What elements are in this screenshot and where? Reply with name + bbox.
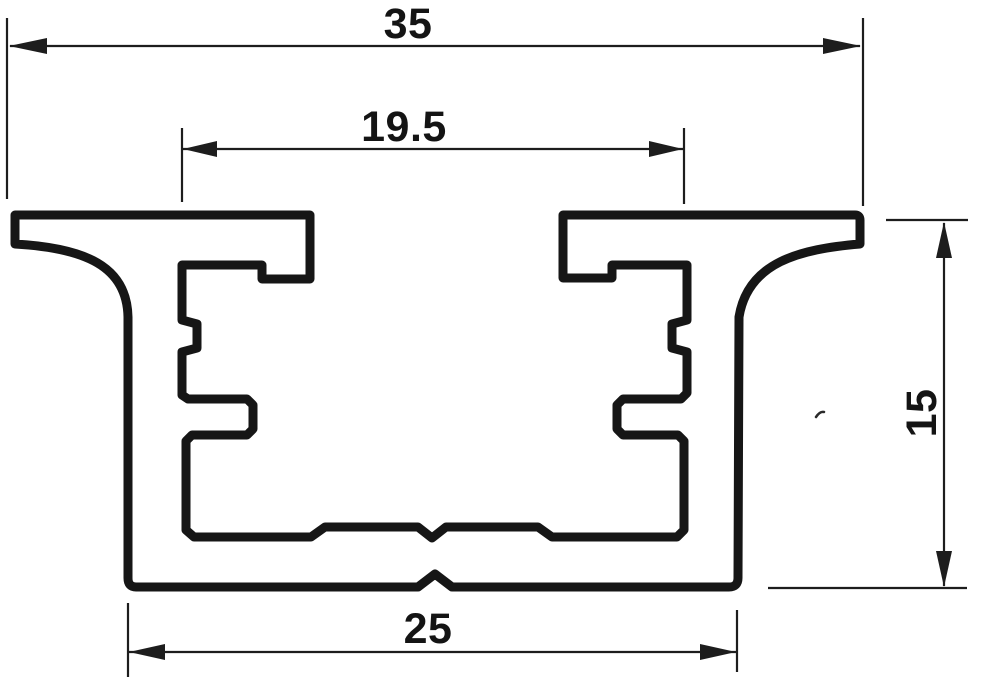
- arrowhead-down: [936, 551, 952, 587]
- dimension-base-width: 25: [128, 603, 737, 677]
- profile-outline: [15, 215, 860, 587]
- scan-speck: [816, 412, 824, 417]
- arrowhead-right: [700, 644, 736, 660]
- dimension-height: 15: [768, 220, 968, 588]
- arrowhead-left: [183, 141, 217, 157]
- arrowhead-right: [649, 141, 683, 157]
- technical-drawing-canvas: 35 19.5 15 25: [0, 0, 1000, 685]
- dimension-base-width-label: 25: [404, 605, 453, 653]
- dimension-opening-width: 19.5: [182, 103, 684, 204]
- arrowhead-up: [936, 222, 952, 258]
- dimension-height-label: 15: [898, 389, 946, 438]
- drawing-sheet: 35 19.5 15 25: [0, 0, 1000, 685]
- dimension-overall-width-label: 35: [384, 0, 433, 48]
- arrowhead-left: [129, 644, 165, 660]
- arrowhead-left: [9, 38, 47, 54]
- arrowhead-right: [823, 38, 861, 54]
- dimension-opening-width-label: 19.5: [361, 103, 447, 151]
